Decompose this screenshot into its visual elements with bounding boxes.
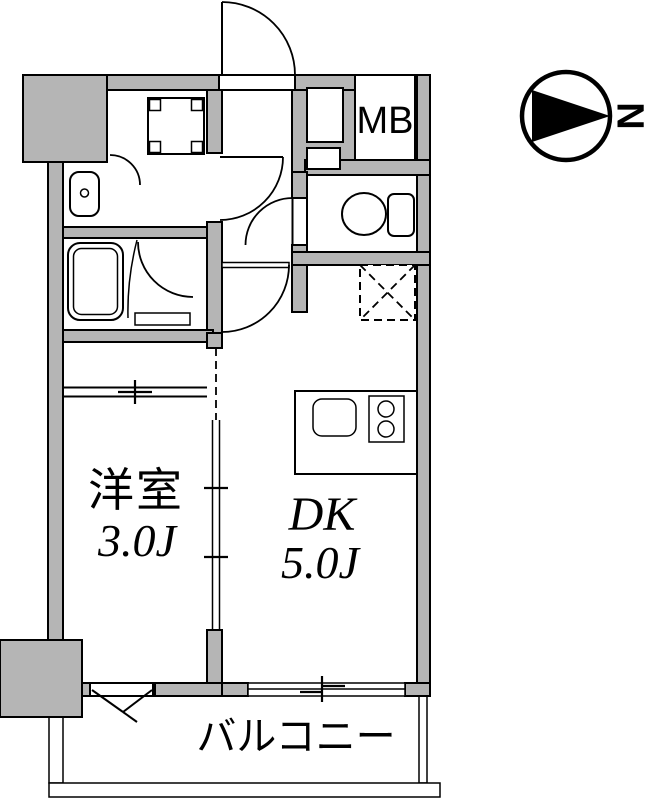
pan-corner <box>150 100 161 111</box>
dk-door-swing-arc <box>222 265 289 332</box>
western-room-size: 3.0J <box>97 515 179 566</box>
stove-burner <box>378 421 394 437</box>
north-arrow: N <box>522 72 651 160</box>
wall-segment <box>207 333 222 348</box>
wall-segment <box>155 683 222 696</box>
wall-column <box>0 640 82 717</box>
floor-plan-page: 洋室 3.0J DK 5.0J バルコニー MB N <box>0 0 654 800</box>
pan-corner <box>192 100 203 111</box>
meter-box-label: MB <box>357 100 414 142</box>
floor-plan-svg: 洋室 3.0J DK 5.0J バルコニー MB N <box>0 0 654 800</box>
stove-burner <box>378 401 394 417</box>
bathtub-icon <box>68 240 190 325</box>
wall-segment <box>405 683 430 696</box>
bedroom-dk-sliding-partition <box>204 348 228 630</box>
wash-basin-icon <box>70 172 99 216</box>
western-room-label: 洋室 <box>88 464 184 516</box>
bedroom-balcony-window <box>90 683 153 696</box>
shoe-cabinet-lower <box>307 148 340 169</box>
wash-basin-drain <box>81 189 89 197</box>
dk-balcony-sliding-window-symbol <box>248 676 405 702</box>
wall-segment <box>48 162 63 640</box>
toilet-tank <box>388 194 414 236</box>
bathroom-door-swing-arc <box>138 242 193 297</box>
bathtub-apron-curve <box>128 240 137 318</box>
wall-segment <box>207 90 222 153</box>
pan-corner <box>192 142 203 153</box>
north-label: N <box>609 102 651 129</box>
wall-segment <box>292 172 307 198</box>
partition-marker-line <box>123 712 137 722</box>
balcony-rail-left <box>49 717 63 783</box>
entrance-threshold <box>219 75 295 90</box>
shoe-cabinet <box>307 88 343 142</box>
toilet-bowl <box>342 193 386 235</box>
bathroom-door-sill <box>135 313 190 325</box>
washing-machine-pan-icon <box>148 98 204 154</box>
bedroom-top-sliding-window-symbol <box>63 380 207 404</box>
balcony-rail-right <box>419 696 427 783</box>
wall-segment <box>107 75 219 90</box>
wall-segment <box>207 222 222 342</box>
kitchen-counter <box>295 391 417 474</box>
balcony-label: バルコニー <box>196 715 395 759</box>
dk-size: 5.0J <box>281 537 362 588</box>
wall-segment <box>292 252 430 265</box>
entrance-door-swing-arc <box>222 2 295 75</box>
wall-segment <box>63 227 207 238</box>
kitchen-sink-icon <box>313 399 356 436</box>
dk-label: DK <box>288 488 359 541</box>
balcony-rail-bottom <box>49 783 440 797</box>
toilet-icon <box>342 193 414 236</box>
dk-door-leaf <box>222 263 289 268</box>
wall-segment <box>222 683 248 696</box>
doors <box>110 2 295 332</box>
washroom-door-swing-arc <box>220 157 283 220</box>
wall-segment <box>63 330 213 342</box>
washroom-inner-door-arc <box>110 155 140 185</box>
refrigerator-space-dashed-box <box>360 265 415 320</box>
wall-segment <box>82 683 90 696</box>
bathtub-inner <box>74 249 118 315</box>
toilet-door-swing-arc <box>246 198 293 245</box>
wall-segment <box>23 75 107 162</box>
pan-corner <box>150 142 161 153</box>
